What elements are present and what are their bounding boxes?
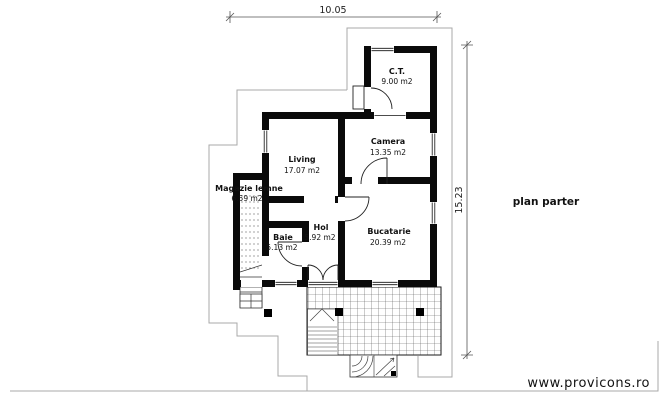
terrace-post — [416, 308, 424, 316]
room-area-magazie: 6.59 m2 — [231, 194, 262, 203]
room-area-hol: 5.92 m2 — [304, 233, 335, 242]
room-area-baie: 5.13 m2 — [266, 243, 297, 252]
room-label-hol: Hol — [314, 223, 329, 232]
dimension-height-label: 15.23 — [454, 186, 465, 213]
room-area-camera: 13.35 m2 — [370, 148, 406, 157]
dimension-width-label: 10.05 — [319, 5, 346, 16]
room-label-ct: C.T. — [389, 67, 405, 76]
terrace-post — [335, 308, 343, 316]
floor-plan-svg: 10.05 15.23 — [0, 0, 668, 400]
room-area-living: 17.07 m2 — [284, 166, 320, 175]
terrace-post — [264, 309, 272, 317]
watermark: www.provicons.ro — [527, 376, 650, 391]
room-label-bucatarie: Bucatarie — [367, 227, 411, 236]
room-label-living: Living — [288, 155, 315, 164]
room-label-camera: Camera — [371, 137, 405, 146]
room-label-magazie: Magazie lemne — [215, 184, 283, 193]
entry-door-panel — [353, 86, 364, 109]
staircase — [240, 196, 262, 308]
floor-plan: 10.05 15.23 — [0, 0, 668, 400]
room-labels: C.T. 9.00 m2 Camera 13.35 m2 Living 17.0… — [215, 67, 413, 252]
terrace-side-steps — [308, 309, 339, 355]
entry-steps — [350, 355, 397, 377]
room-area-ct: 9.00 m2 — [381, 77, 412, 86]
plan-title: plan parter — [513, 196, 580, 208]
room-label-baie: Baie — [273, 233, 293, 242]
terrace — [264, 287, 441, 377]
room-area-bucatarie: 20.39 m2 — [370, 238, 406, 247]
